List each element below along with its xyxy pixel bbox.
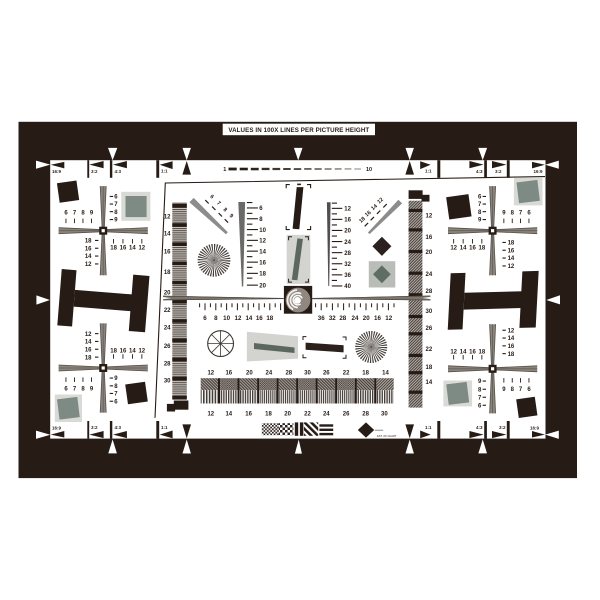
svg-text:4:3: 4:3: [476, 169, 483, 174]
svg-text:16: 16: [164, 250, 171, 256]
svg-text:28: 28: [426, 289, 433, 295]
svg-text:28: 28: [362, 412, 369, 418]
svg-text:16:9: 16:9: [52, 425, 62, 430]
svg-text:22: 22: [164, 308, 171, 314]
svg-text:18: 18: [164, 270, 171, 276]
svg-text:16: 16: [508, 344, 515, 350]
svg-text:20: 20: [363, 315, 370, 322]
svg-text:26: 26: [323, 371, 330, 377]
svg-text:24: 24: [266, 371, 273, 377]
svg-text:32: 32: [344, 262, 351, 268]
svg-text:14: 14: [245, 315, 252, 322]
svg-text:14: 14: [460, 349, 467, 355]
svg-text:26: 26: [426, 326, 433, 332]
svg-text:16: 16: [85, 347, 92, 353]
svg-text:18: 18: [426, 365, 433, 371]
svg-text:36: 36: [318, 315, 325, 322]
svg-text:3:2: 3:2: [495, 169, 502, 174]
svg-text:16: 16: [344, 218, 351, 224]
svg-text:14: 14: [508, 336, 515, 342]
svg-text:12: 12: [207, 412, 214, 418]
svg-text:16: 16: [120, 349, 127, 355]
svg-text:14: 14: [164, 232, 171, 238]
svg-text:18: 18: [265, 412, 272, 418]
svg-text:16:9: 16:9: [530, 425, 540, 430]
svg-text:12: 12: [85, 332, 92, 338]
svg-text:18: 18: [110, 349, 117, 355]
svg-text:4:3: 4:3: [115, 425, 122, 430]
svg-text:12: 12: [450, 246, 457, 252]
svg-text:16: 16: [256, 315, 263, 322]
svg-text:24: 24: [323, 412, 330, 418]
svg-text:18: 18: [110, 246, 117, 252]
svg-text:18: 18: [266, 315, 273, 322]
svg-text:30: 30: [381, 412, 388, 418]
svg-text:16: 16: [85, 246, 92, 252]
svg-text:14: 14: [460, 246, 467, 252]
svg-text:30: 30: [304, 371, 311, 377]
svg-text:1: 1: [223, 167, 226, 173]
svg-text:16: 16: [374, 315, 381, 322]
svg-text:12: 12: [508, 264, 515, 270]
svg-text:16: 16: [508, 248, 515, 254]
svg-text:3:2: 3:2: [91, 169, 98, 174]
svg-text:22: 22: [304, 412, 311, 418]
svg-text:10: 10: [259, 228, 266, 234]
svg-text:12: 12: [207, 371, 214, 377]
svg-text:12: 12: [508, 328, 515, 334]
svg-text:28: 28: [285, 371, 292, 377]
svg-text:18: 18: [362, 371, 369, 377]
svg-text:16: 16: [245, 412, 252, 418]
svg-text:28: 28: [339, 315, 346, 322]
svg-text:14: 14: [85, 254, 92, 260]
svg-text:18: 18: [85, 239, 92, 245]
svg-text:14: 14: [85, 340, 92, 346]
svg-text:18: 18: [479, 246, 486, 252]
svg-text:14: 14: [225, 412, 232, 418]
svg-text:16:9: 16:9: [534, 169, 544, 174]
svg-text:18: 18: [508, 352, 515, 358]
svg-text:12: 12: [385, 315, 392, 322]
svg-text:20: 20: [426, 250, 433, 256]
svg-text:16: 16: [120, 246, 127, 252]
svg-text:14: 14: [129, 246, 136, 252]
svg-text:16: 16: [469, 246, 476, 252]
svg-text:6: 6: [203, 315, 207, 322]
svg-text:8: 8: [214, 315, 218, 322]
svg-text:1:1: 1:1: [425, 168, 432, 173]
svg-text:20: 20: [284, 412, 291, 418]
svg-text:12: 12: [164, 214, 171, 220]
svg-text:24: 24: [352, 315, 359, 322]
svg-text:14: 14: [426, 380, 433, 386]
svg-text:22: 22: [343, 371, 350, 377]
svg-text:30: 30: [164, 379, 171, 385]
svg-text:1:1: 1:1: [161, 425, 168, 430]
svg-text:12: 12: [426, 214, 433, 220]
svg-text:P: P: [364, 428, 368, 434]
svg-text:14: 14: [382, 371, 389, 377]
svg-text:12: 12: [259, 239, 266, 245]
svg-text:20: 20: [344, 229, 351, 235]
svg-text:VALUES IN 100X LINES PER PICTU: VALUES IN 100X LINES PER PICTURE HEIGHT: [228, 127, 369, 134]
svg-text:12: 12: [344, 207, 351, 213]
svg-text:36: 36: [344, 273, 351, 279]
svg-text:16:9: 16:9: [52, 169, 62, 174]
svg-text:18: 18: [479, 349, 486, 355]
svg-text:3:2: 3:2: [499, 425, 506, 430]
svg-text:1:1: 1:1: [161, 168, 168, 173]
svg-text:18: 18: [259, 272, 266, 278]
svg-text:12: 12: [450, 349, 457, 355]
svg-text:14: 14: [259, 249, 266, 255]
svg-text:40: 40: [344, 284, 351, 290]
svg-text:12: 12: [138, 349, 145, 355]
svg-text:28: 28: [164, 361, 171, 367]
svg-text:14: 14: [508, 256, 515, 262]
svg-text:18: 18: [85, 355, 92, 361]
svg-text:EST. OF CHART: EST. OF CHART: [377, 434, 397, 438]
svg-text:26: 26: [164, 344, 171, 350]
svg-text:16: 16: [469, 349, 476, 355]
svg-text:10: 10: [223, 315, 230, 322]
svg-text:24: 24: [344, 240, 351, 246]
svg-text:26: 26: [343, 412, 350, 418]
svg-text:16: 16: [259, 260, 266, 266]
svg-text:16: 16: [426, 235, 433, 241]
svg-text:20: 20: [259, 283, 266, 289]
svg-text:1:1: 1:1: [425, 425, 432, 430]
svg-text:20: 20: [246, 371, 253, 377]
svg-text:32: 32: [329, 315, 336, 322]
svg-text:12: 12: [85, 262, 92, 268]
svg-text:4:3: 4:3: [115, 169, 122, 174]
svg-text:30: 30: [426, 309, 433, 315]
svg-text:24: 24: [426, 272, 433, 278]
svg-text:28: 28: [344, 251, 351, 257]
svg-text:12: 12: [235, 315, 242, 322]
svg-text:16: 16: [225, 371, 232, 377]
svg-text:24: 24: [164, 325, 171, 331]
svg-text:3:2: 3:2: [91, 425, 98, 430]
svg-text:10: 10: [366, 167, 372, 173]
svg-text:14: 14: [129, 349, 136, 355]
svg-text:18: 18: [508, 241, 515, 247]
svg-text:22: 22: [426, 347, 433, 353]
svg-text:4:3: 4:3: [476, 425, 483, 430]
svg-text:12: 12: [138, 246, 145, 252]
svg-text:20: 20: [164, 291, 171, 297]
